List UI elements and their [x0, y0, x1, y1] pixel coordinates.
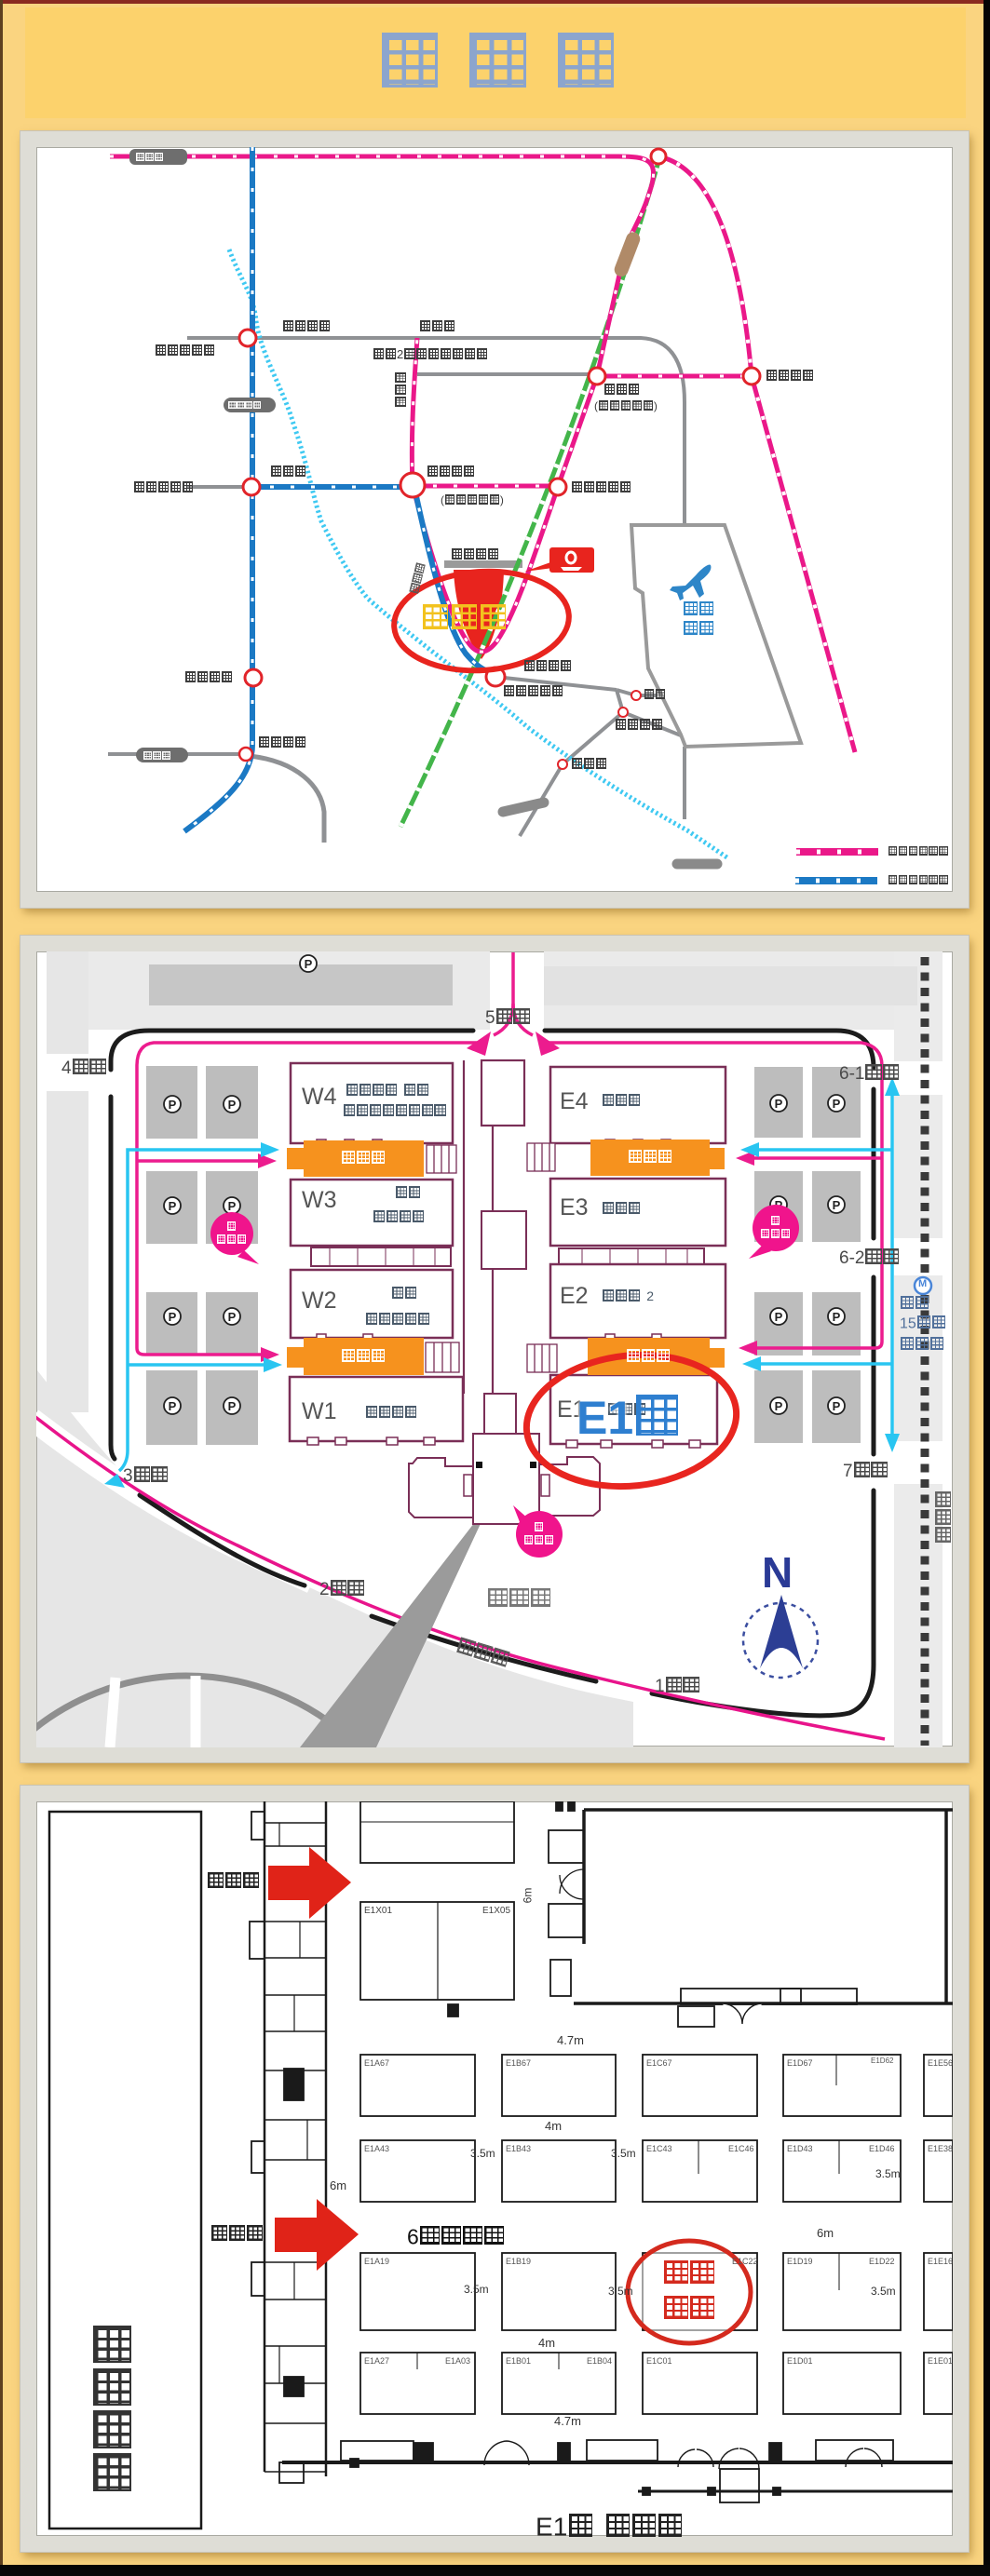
svg-text:P: P [169, 1310, 177, 1324]
svg-text:P: P [775, 1399, 783, 1413]
svg-text:P: P [833, 1310, 841, 1324]
svg-text:P: P [228, 1199, 237, 1213]
svg-text:P: P [228, 1399, 237, 1413]
svg-text:P: P [833, 1097, 841, 1111]
svg-text:P: P [228, 1098, 237, 1112]
svg-text:P: P [228, 1310, 237, 1324]
svg-text:P: P [305, 957, 313, 971]
svg-text:P: P [833, 1399, 841, 1413]
svg-text:P: P [775, 1097, 783, 1111]
svg-text:P: P [169, 1399, 177, 1413]
svg-text:P: P [169, 1199, 177, 1213]
svg-text:P: P [833, 1198, 841, 1212]
svg-text:P: P [169, 1098, 177, 1112]
svg-text:P: P [775, 1310, 783, 1324]
